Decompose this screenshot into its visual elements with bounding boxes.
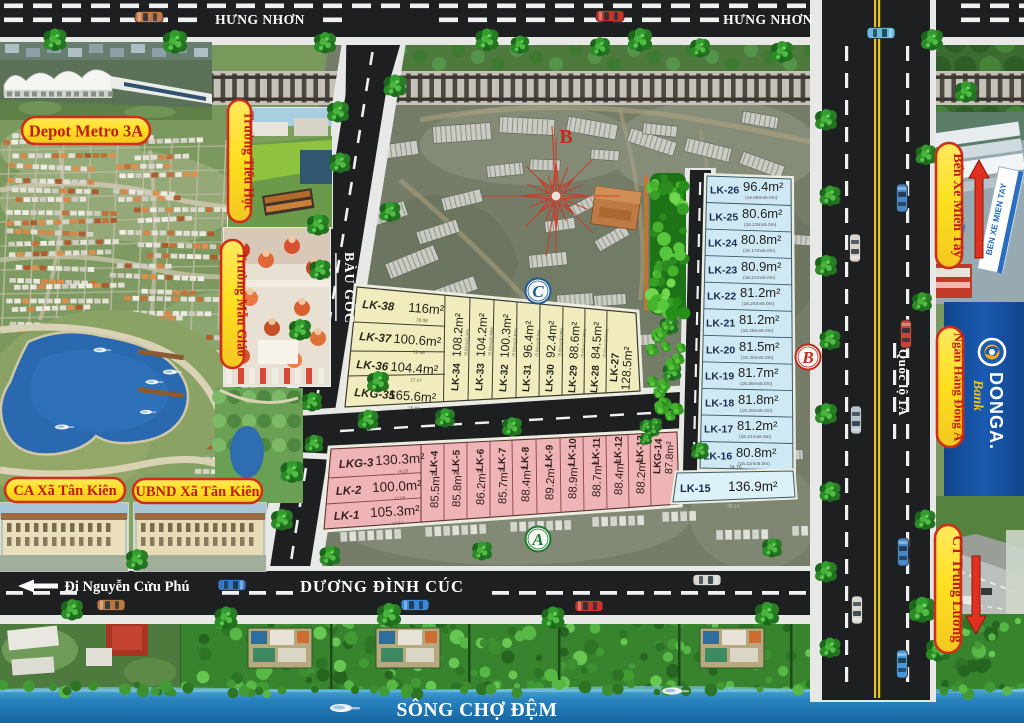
- svg-text:Depot Metro 3A: Depot Metro 3A: [29, 121, 143, 140]
- svg-text:LK-15: LK-15: [680, 483, 711, 495]
- svg-text:81.7m²: 81.7m²: [738, 365, 779, 380]
- svg-text:16.46: 16.46: [413, 349, 425, 355]
- svg-text:LK-10: LK-10: [567, 438, 579, 467]
- svg-text:LK-9: LK-9: [544, 444, 556, 467]
- svg-text:24.16: 24.16: [729, 465, 742, 471]
- svg-text:LK-31: LK-31: [521, 363, 534, 392]
- svg-text:LK-18: LK-18: [705, 398, 734, 410]
- svg-text:LK-38: LK-38: [362, 299, 395, 314]
- svg-text:LK-1: LK-1: [334, 510, 360, 523]
- svg-text:LKG-3: LKG-3: [339, 457, 375, 471]
- svg-text:87.8m²: 87.8m²: [663, 441, 677, 475]
- svg-text:100.0m²: 100.0m²: [372, 477, 423, 495]
- svg-text:LK-23: LK-23: [708, 265, 737, 277]
- svg-text:Đi Nguyễn Cửu Phú: Đi Nguyễn Cửu Phú: [64, 579, 189, 595]
- svg-text:81.5m²: 81.5m²: [739, 339, 780, 354]
- svg-text:BÀU GỐC: BÀU GỐC: [341, 252, 359, 324]
- svg-text:88.7m²: 88.7m²: [591, 461, 605, 498]
- svg-text:(16.13mx5.0m): (16.13mx5.0m): [744, 222, 777, 228]
- svg-text:(16.28mx5.0m): (16.28mx5.0m): [741, 328, 774, 334]
- svg-text:89.2m²: 89.2m²: [544, 464, 558, 501]
- svg-text:B: B: [801, 348, 813, 367]
- svg-text:LK-29: LK-29: [567, 364, 580, 393]
- svg-text:17.27: 17.27: [410, 377, 422, 383]
- svg-text:LK-2: LK-2: [336, 485, 363, 498]
- svg-text:DONGA.: DONGA.: [986, 372, 1006, 450]
- svg-text:HƯNG NHƠN: HƯNG NHƠN: [723, 12, 813, 27]
- svg-text:CA Xã Tân Kiên: CA Xã Tân Kiên: [13, 483, 116, 499]
- svg-text:UBND Xã Tân Kiên: UBND Xã Tân Kiên: [135, 484, 259, 500]
- svg-text:88.2m²: 88.2m²: [635, 458, 649, 495]
- svg-text:LK-32: LK-32: [498, 363, 511, 392]
- svg-text:Bank: Bank: [970, 379, 985, 411]
- svg-text:85.8m²: 85.8m²: [451, 471, 465, 508]
- svg-text:LK-4: LK-4: [429, 450, 441, 473]
- svg-text:LK-37: LK-37: [359, 331, 392, 346]
- svg-text:LK-17: LK-17: [704, 424, 733, 436]
- svg-text:(16.11mx5.0m): (16.11mx5.0m): [738, 461, 770, 467]
- svg-text:88.9m²: 88.9m²: [567, 463, 581, 500]
- svg-text:LK-24: LK-24: [708, 238, 737, 250]
- svg-text:81.2m²: 81.2m²: [737, 418, 778, 433]
- svg-text:96.4m²: 96.4m²: [743, 179, 784, 194]
- svg-text:HƯNG NHƠN: HƯNG NHƠN: [215, 12, 305, 27]
- svg-text:81.8m²: 81.8m²: [738, 392, 779, 407]
- svg-text:LK-20: LK-20: [706, 345, 735, 357]
- svg-text:CT Trung Lương: CT Trung Lương: [949, 536, 965, 644]
- svg-text:130.3m²: 130.3m²: [375, 450, 426, 468]
- svg-text:LK-30: LK-30: [544, 363, 557, 392]
- svg-text:16.08: 16.08: [416, 317, 428, 323]
- svg-text:LK-34: LK-34: [450, 362, 463, 391]
- svg-text:Quốc lộ 1A: Quốc lộ 1A: [896, 349, 911, 416]
- svg-text:(16.21mx5.0m): (16.21mx5.0m): [739, 434, 772, 440]
- svg-text:LK-8: LK-8: [520, 446, 532, 469]
- svg-text:B: B: [559, 126, 572, 148]
- svg-text:105.3m²: 105.3m²: [370, 502, 421, 520]
- svg-text:85.7m²: 85.7m²: [497, 468, 511, 505]
- svg-text:(16.32mx5.0m): (16.32mx5.0m): [741, 355, 774, 361]
- svg-text:(16.09mx5.0m): (16.09mx5.0m): [745, 195, 778, 201]
- svg-text:LK-7: LK-7: [497, 447, 509, 470]
- svg-text:LK-6: LK-6: [475, 448, 487, 471]
- svg-text:80.6m²: 80.6m²: [742, 206, 783, 221]
- svg-text:LK-26: LK-26: [710, 185, 739, 197]
- svg-text:LK-5: LK-5: [451, 449, 463, 472]
- svg-text:LK-36: LK-36: [356, 359, 389, 374]
- svg-text:Ngân Hàng Đông Á: Ngân Hàng Đông Á: [952, 333, 967, 442]
- svg-text:80.9m²: 80.9m²: [741, 259, 782, 274]
- svg-text:LK-19: LK-19: [705, 371, 734, 383]
- svg-text:LK-28: LK-28: [589, 364, 602, 393]
- svg-text:LK-21: LK-21: [706, 318, 735, 330]
- svg-text:85.5m²: 85.5m²: [429, 472, 443, 509]
- svg-text:17.09: 17.09: [394, 495, 406, 501]
- svg-text:88.4m²: 88.4m²: [613, 459, 627, 496]
- svg-text:(16.36mx5.0m): (16.36mx5.0m): [740, 381, 773, 387]
- svg-text:(16.24mx5.0m): (16.24mx5.0m): [742, 301, 775, 307]
- svg-text:74.23: 74.23: [397, 468, 409, 474]
- svg-text:88.4m²: 88.4m²: [520, 466, 534, 503]
- svg-text:LK-22: LK-22: [707, 291, 736, 303]
- svg-text:(16.21mx5.0m): (16.21mx5.0m): [743, 275, 776, 281]
- svg-text:(16.30mx5.0m): (16.30mx5.0m): [740, 408, 773, 414]
- svg-text:(16.17mx5.0m): (16.17mx5.0m): [743, 248, 776, 254]
- svg-text:Bến Xe Miền Tây: Bến Xe Miền Tây: [950, 153, 965, 257]
- svg-text:86.2m²: 86.2m²: [475, 469, 489, 506]
- svg-text:A: A: [531, 530, 543, 549]
- svg-text:16.60: 16.60: [408, 405, 420, 411]
- svg-text:Trường Tiểu Học: Trường Tiểu Học: [241, 111, 256, 211]
- svg-text:80.8m²: 80.8m²: [741, 232, 782, 247]
- svg-text:LK-33: LK-33: [474, 362, 487, 391]
- svg-text:SÔNG CHỢ ĐỆM: SÔNG CHỢ ĐỆM: [397, 699, 558, 721]
- svg-text:38.10: 38.10: [727, 504, 740, 510]
- svg-text:81.2m²: 81.2m²: [740, 285, 781, 300]
- svg-text:136.9m²: 136.9m²: [728, 479, 778, 494]
- svg-text:81.2m²: 81.2m²: [739, 312, 780, 327]
- svg-text:Trường Mẫu Giáo: Trường Mẫu Giáo: [234, 251, 249, 357]
- svg-text:LK-25: LK-25: [709, 212, 738, 224]
- svg-text:C: C: [532, 282, 544, 301]
- svg-text:116m²: 116m²: [408, 300, 446, 318]
- svg-text:DƯƠNG ĐÌNH CÚC: DƯƠNG ĐÌNH CÚC: [300, 577, 464, 596]
- svg-text:80.8m²: 80.8m²: [736, 445, 777, 460]
- svg-text:17.54: 17.54: [392, 520, 404, 526]
